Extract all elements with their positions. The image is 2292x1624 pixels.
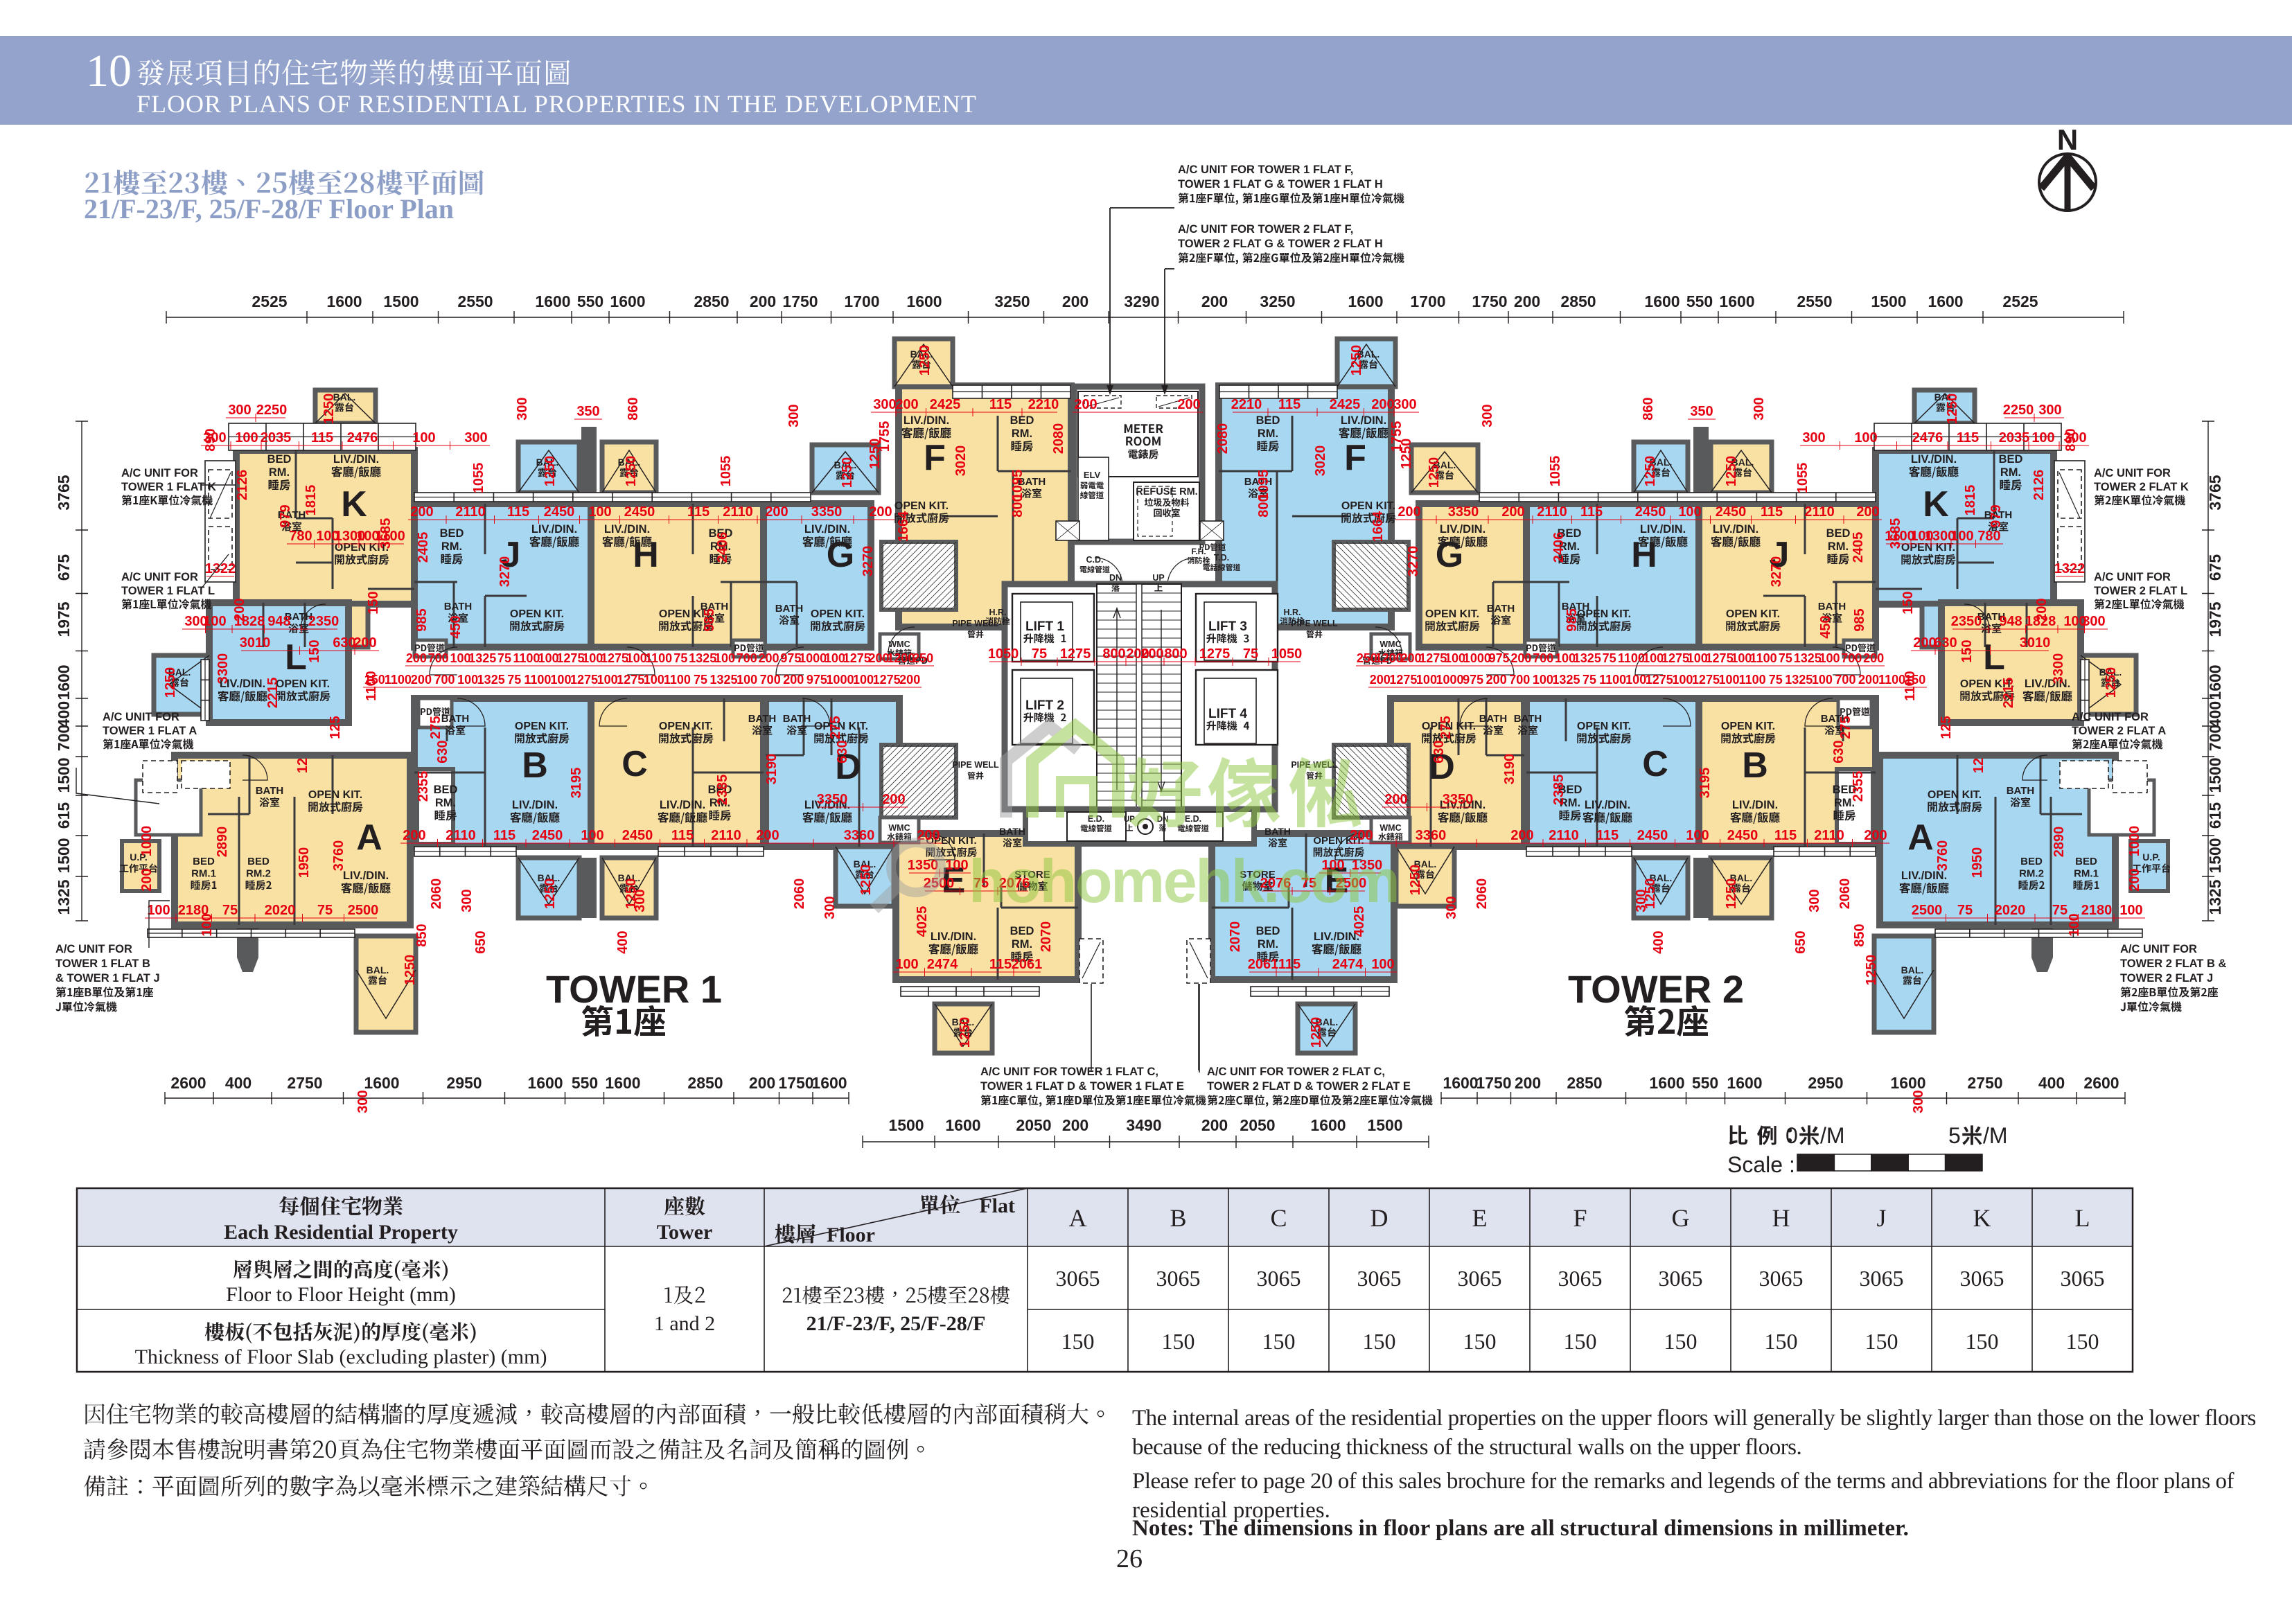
svg-text:700: 700	[760, 673, 781, 687]
svg-text:100: 100	[582, 651, 603, 665]
svg-text:100: 100	[895, 957, 918, 972]
svg-text:1050: 1050	[1271, 646, 1303, 662]
svg-text:1600: 1600	[1443, 1074, 1478, 1092]
svg-text:75: 75	[2052, 903, 2068, 918]
svg-text:B: B	[1170, 1204, 1186, 1232]
svg-text:2850: 2850	[687, 1074, 723, 1092]
svg-text:because of the reducing thickn: because of the reducing thickness of the…	[1132, 1435, 1801, 1460]
svg-text:1664: 1664	[1370, 511, 1386, 542]
svg-text:400: 400	[615, 930, 631, 953]
svg-text:2406: 2406	[1551, 532, 1567, 563]
svg-text:780: 780	[289, 529, 312, 544]
svg-text:150: 150	[1564, 1329, 1597, 1354]
svg-text:1250: 1250	[1427, 457, 1442, 488]
svg-text:1600: 1600	[535, 292, 570, 310]
svg-text:TOWER 1 FLAT D & TOWER 1 FLAT: TOWER 1 FLAT D & TOWER 1 FLAT E	[980, 1080, 1184, 1093]
svg-text:100: 100	[1371, 957, 1394, 972]
svg-text:BATH: BATH	[1514, 713, 1542, 725]
svg-text:1600: 1600	[1890, 1074, 1925, 1092]
svg-text:150: 150	[1061, 1329, 1095, 1354]
svg-text:2890: 2890	[2052, 827, 2067, 858]
svg-text:300: 300	[1752, 397, 1767, 420]
svg-text:2750: 2750	[287, 1074, 322, 1092]
svg-text:BATH: BATH	[783, 713, 811, 725]
svg-text:LIV./DIN.: LIV./DIN.	[931, 930, 976, 943]
svg-text:2450: 2450	[1716, 504, 1747, 520]
svg-text:2350: 2350	[308, 614, 340, 629]
svg-text:OPEN KIT.: OPEN KIT.	[811, 608, 865, 620]
svg-text:A/C UNIT FOR: A/C UNIT FOR	[103, 711, 179, 723]
svg-text:200: 200	[1062, 1116, 1088, 1134]
svg-text:100: 100	[412, 430, 435, 445]
svg-text:200: 200	[353, 635, 376, 651]
svg-text:250: 250	[913, 651, 933, 665]
svg-text:700: 700	[2206, 725, 2224, 751]
svg-text:3065: 3065	[1558, 1266, 1603, 1291]
svg-text:650: 650	[1793, 930, 1808, 953]
svg-text:LIV./DIN.: LIV./DIN.	[604, 523, 650, 536]
svg-text:RM.: RM.	[441, 540, 462, 553]
svg-text:1250: 1250	[321, 394, 337, 425]
svg-text:75: 75	[1957, 903, 1973, 918]
svg-text:B: B	[522, 745, 548, 786]
svg-text:L: L	[2075, 1204, 2090, 1232]
svg-text:LIV./DIN.: LIV./DIN.	[531, 523, 577, 536]
svg-text:1055: 1055	[471, 463, 486, 494]
svg-text:5: 5	[1948, 1123, 1961, 1148]
svg-text:2450: 2450	[532, 828, 563, 843]
svg-text:100: 100	[597, 673, 618, 687]
svg-text:275: 275	[1838, 716, 1853, 739]
svg-text:3020: 3020	[1313, 445, 1328, 477]
svg-text:400: 400	[225, 1074, 252, 1092]
svg-text:300: 300	[1393, 397, 1416, 412]
svg-text:TOWER 2 FLAT J: TOWER 2 FLAT J	[2120, 972, 2213, 985]
svg-text:150: 150	[366, 591, 381, 614]
svg-text:2210: 2210	[1231, 397, 1262, 412]
svg-text:300: 300	[1634, 889, 1649, 912]
svg-text:1100: 1100	[1750, 651, 1777, 665]
svg-text:K: K	[341, 484, 367, 524]
svg-text:115: 115	[1278, 957, 1301, 972]
svg-text:2385: 2385	[1551, 775, 1567, 806]
svg-text:700: 700	[1509, 673, 1530, 687]
svg-text:1275: 1275	[1692, 673, 1720, 687]
svg-text:LIFT 3: LIFT 3	[1208, 619, 1247, 634]
svg-text:985: 985	[702, 608, 717, 631]
svg-text:200: 200	[765, 504, 788, 520]
svg-text:200: 200	[1510, 828, 1533, 843]
svg-text:1275: 1275	[601, 651, 628, 665]
svg-text:200: 200	[1398, 504, 1420, 520]
svg-text:200: 200	[232, 598, 247, 621]
svg-text:2110: 2110	[723, 504, 752, 520]
svg-text:3270: 3270	[1769, 556, 1784, 588]
svg-text:100: 100	[1416, 673, 1437, 687]
svg-text:2110: 2110	[711, 828, 741, 843]
svg-text:1100: 1100	[524, 673, 551, 687]
svg-text:1700: 1700	[1410, 292, 1445, 310]
svg-text:4025: 4025	[915, 906, 930, 937]
svg-text:A/C UNIT FOR: A/C UNIT FOR	[121, 571, 198, 583]
svg-text:200: 200	[406, 651, 427, 665]
svg-text:200: 200	[1350, 828, 1373, 843]
svg-text:975: 975	[806, 673, 827, 687]
svg-text:1600: 1600	[364, 1074, 399, 1092]
svg-text:200: 200	[1062, 292, 1088, 310]
svg-text:2600: 2600	[2083, 1074, 2119, 1092]
svg-text:2215: 2215	[265, 678, 281, 709]
svg-text:300: 300	[355, 1090, 371, 1113]
svg-text:890: 890	[203, 428, 218, 451]
svg-text:1975: 1975	[55, 601, 73, 637]
svg-text:2525: 2525	[252, 292, 287, 310]
svg-text:100: 100	[203, 614, 226, 629]
svg-text:A: A	[1907, 818, 1934, 858]
svg-text:150: 150	[1901, 591, 1916, 614]
svg-text:RM.: RM.	[435, 797, 456, 809]
svg-text:1000: 1000	[139, 826, 155, 857]
svg-text:100: 100	[200, 913, 215, 936]
svg-text:RM.2: RM.2	[246, 868, 271, 880]
svg-text:LIV./DIN.: LIV./DIN.	[660, 799, 705, 811]
svg-text:300: 300	[515, 397, 530, 420]
svg-text:100: 100	[644, 673, 664, 687]
svg-text:TOWER 1 FLAT A: TOWER 1 FLAT A	[103, 725, 197, 737]
svg-text:1250: 1250	[858, 865, 874, 896]
svg-text:948: 948	[267, 614, 290, 629]
svg-text:100: 100	[147, 903, 170, 918]
svg-text:100: 100	[2031, 430, 2054, 445]
svg-text:100: 100	[550, 673, 571, 687]
svg-text:1500: 1500	[888, 1116, 924, 1134]
svg-text:200: 200	[410, 504, 433, 520]
svg-text:1600: 1600	[610, 292, 645, 310]
svg-text:350: 350	[1690, 404, 1713, 419]
svg-text:250: 250	[1357, 651, 1377, 665]
svg-text:1250: 1250	[1724, 879, 1739, 910]
svg-text:2110: 2110	[1814, 828, 1844, 843]
svg-text:H: H	[1772, 1204, 1790, 1232]
svg-text:A/C UNIT FOR: A/C UNIT FOR	[2094, 467, 2171, 479]
svg-text:3065: 3065	[1056, 1266, 1100, 1291]
svg-text:RM.: RM.	[1012, 427, 1032, 440]
svg-text:1250: 1250	[1643, 456, 1658, 487]
svg-text:3010: 3010	[240, 635, 271, 651]
svg-text:LIV./DIN.: LIV./DIN.	[1713, 523, 1758, 536]
svg-text:150: 150	[1865, 1329, 1898, 1354]
svg-text:3300: 3300	[2051, 653, 2066, 685]
svg-text:1000: 1000	[799, 651, 827, 665]
svg-text:2450: 2450	[1635, 504, 1666, 520]
svg-text:2060: 2060	[1474, 879, 1490, 910]
svg-text:E.D.: E.D.	[1185, 814, 1201, 824]
svg-text:2180: 2180	[2081, 903, 2113, 918]
svg-text:2355: 2355	[416, 771, 431, 802]
svg-text:275: 275	[428, 716, 443, 739]
svg-text:TOWER 2 FLAT L: TOWER 2 FLAT L	[2094, 585, 2187, 597]
svg-text:RM.: RM.	[2000, 466, 2021, 479]
svg-text:100: 100	[2063, 614, 2086, 629]
svg-text:J: J	[1876, 1204, 1886, 1232]
svg-text:675: 675	[55, 554, 73, 581]
svg-text:1500: 1500	[2206, 838, 2224, 873]
svg-text:2500: 2500	[348, 903, 379, 918]
svg-text:1200: 1200	[1375, 651, 1403, 665]
svg-text:1322: 1322	[2054, 561, 2086, 576]
svg-text:115: 115	[311, 430, 333, 445]
svg-text:/M: /M	[1983, 1123, 2008, 1148]
svg-text:1250: 1250	[1349, 345, 1364, 376]
svg-text:275: 275	[1438, 716, 1454, 739]
svg-text:100: 100	[588, 504, 611, 520]
svg-text:800: 800	[1164, 646, 1187, 662]
svg-text:LIV./DIN.: LIV./DIN.	[804, 523, 850, 536]
svg-text:350: 350	[576, 404, 599, 419]
svg-text:3765: 3765	[2206, 475, 2224, 510]
svg-text:975: 975	[780, 651, 801, 665]
svg-text:BATH: BATH	[2007, 785, 2035, 797]
svg-text:Floor: Floor	[827, 1224, 875, 1246]
svg-text:A/C UNIT FOR TOWER 2 FLAT C,: A/C UNIT FOR TOWER 2 FLAT C,	[1207, 1066, 1385, 1078]
svg-text:2950: 2950	[1808, 1074, 1843, 1092]
svg-text:850: 850	[1852, 924, 1867, 946]
svg-text:1322: 1322	[205, 561, 236, 576]
svg-text:200: 200	[1201, 292, 1228, 310]
svg-text:300: 300	[2038, 403, 2061, 418]
svg-text:1100: 1100	[645, 651, 672, 665]
svg-text:hohomehk.com: hohomehk.com	[969, 847, 1398, 915]
svg-text:1325: 1325	[55, 879, 73, 915]
svg-text:100: 100	[1731, 651, 1752, 665]
svg-text:630: 630	[835, 740, 850, 763]
svg-text:115: 115	[1761, 504, 1783, 520]
svg-text:3350: 3350	[811, 504, 843, 520]
svg-text:OPEN KIT.: OPEN KIT.	[1341, 500, 1395, 512]
svg-text:C: C	[1270, 1204, 1287, 1232]
svg-text:300: 300	[1444, 896, 1459, 919]
svg-text:3300: 3300	[215, 653, 231, 685]
svg-text:200: 200	[1856, 504, 1879, 520]
svg-text:1050: 1050	[988, 646, 1019, 662]
svg-text:100: 100	[1625, 673, 1646, 687]
svg-text:1275: 1275	[1389, 673, 1417, 687]
svg-text:700: 700	[428, 651, 449, 665]
svg-text:200: 200	[759, 651, 779, 665]
svg-text:OPEN KIT.: OPEN KIT.	[276, 678, 330, 690]
svg-text:200: 200	[1371, 397, 1394, 412]
svg-text:3490: 3490	[1126, 1116, 1161, 1134]
svg-text:A/C UNIT FOR: A/C UNIT FOR	[2072, 711, 2149, 723]
svg-text:1600: 1600	[1727, 1074, 1762, 1092]
svg-text:T.D.: T.D.	[1214, 553, 1229, 563]
svg-text:BATH: BATH	[256, 785, 284, 797]
svg-text:1325: 1325	[2206, 879, 2224, 915]
svg-text:2080: 2080	[1051, 423, 1066, 454]
svg-text:F: F	[1344, 438, 1366, 478]
svg-text:630: 630	[1831, 740, 1846, 763]
svg-text:1325: 1325	[477, 673, 505, 687]
svg-text:A/C UNIT FOR TOWER 2 FLAT F,: A/C UNIT FOR TOWER 2 FLAT F,	[1178, 223, 1353, 236]
svg-text:200: 200	[1400, 651, 1421, 665]
svg-text:1600: 1600	[55, 664, 73, 700]
svg-text:F.H.: F.H.	[1191, 547, 1206, 556]
svg-text:630: 630	[1431, 740, 1447, 763]
svg-text:1600: 1600	[1310, 1116, 1346, 1134]
svg-text:3020: 3020	[953, 445, 969, 477]
svg-text:300: 300	[1911, 1090, 1926, 1113]
svg-text:LIFT 4: LIFT 4	[1208, 707, 1247, 721]
svg-text:1950: 1950	[1970, 847, 1985, 879]
svg-text:780: 780	[1977, 529, 2000, 544]
svg-text:100: 100	[1555, 651, 1576, 665]
svg-text:100: 100	[235, 430, 258, 445]
svg-text:200: 200	[868, 651, 889, 665]
svg-text:3760: 3760	[1935, 840, 1950, 872]
svg-text:2355: 2355	[1851, 771, 1866, 802]
svg-text:1275: 1275	[617, 673, 644, 687]
svg-text:1250: 1250	[867, 439, 883, 470]
svg-text:200: 200	[1384, 792, 1407, 807]
svg-text:1500: 1500	[383, 292, 418, 310]
svg-text:2070: 2070	[1228, 921, 1243, 953]
svg-text:400: 400	[2038, 1074, 2065, 1092]
svg-text:150: 150	[1162, 1329, 1195, 1354]
svg-text:400: 400	[2206, 701, 2224, 727]
svg-text:2950: 2950	[446, 1074, 482, 1092]
svg-text:1325: 1325	[1794, 651, 1822, 665]
svg-text:975: 975	[1489, 651, 1510, 665]
svg-text:200: 200	[783, 673, 804, 687]
svg-text:1500: 1500	[55, 838, 73, 873]
svg-text:200: 200	[1514, 292, 1540, 310]
svg-text:BED: BED	[267, 453, 292, 466]
svg-text:1325: 1325	[1552, 673, 1580, 687]
svg-text:3765: 3765	[55, 475, 73, 510]
svg-text:TOWER 1 FLAT G & TOWER 1 FLAT: TOWER 1 FLAT G & TOWER 1 FLAT H	[1178, 178, 1383, 191]
svg-text:1600: 1600	[1649, 1074, 1684, 1092]
svg-text:1750: 1750	[778, 1074, 813, 1092]
svg-text:1100: 1100	[1599, 673, 1626, 687]
svg-text:BED: BED	[434, 784, 458, 796]
svg-text:100: 100	[2067, 913, 2082, 936]
svg-text:200: 200	[2034, 598, 2049, 621]
svg-text:1250: 1250	[1408, 865, 1423, 896]
svg-text:WMC: WMC	[888, 823, 910, 833]
svg-text:75: 75	[1769, 673, 1783, 687]
svg-text:LIFT 2: LIFT 2	[1025, 698, 1064, 713]
svg-text:100: 100	[1643, 651, 1664, 665]
svg-text:LIV./DIN.: LIV./DIN.	[1640, 523, 1686, 536]
svg-text:LIFT 1: LIFT 1	[1025, 619, 1064, 634]
svg-text:2250: 2250	[256, 403, 288, 418]
svg-text:C: C	[622, 744, 648, 784]
svg-text:100: 100	[737, 673, 757, 687]
svg-text:300: 300	[459, 889, 475, 912]
svg-text:1250: 1250	[543, 879, 558, 910]
svg-text:2550: 2550	[457, 292, 493, 310]
svg-text:700: 700	[1835, 673, 1855, 687]
svg-text:2070: 2070	[1039, 921, 1054, 953]
svg-text:Tower: Tower	[657, 1221, 713, 1244]
svg-text:1100: 1100	[1878, 673, 1905, 687]
svg-text:800: 800	[1010, 494, 1025, 517]
svg-text:1250: 1250	[1309, 1017, 1324, 1048]
svg-text:75: 75	[1779, 651, 1792, 665]
svg-text:2476: 2476	[347, 430, 378, 445]
svg-text:300: 300	[822, 896, 838, 919]
svg-text:630: 630	[1934, 635, 1957, 651]
svg-text:1975: 1975	[2206, 601, 2224, 637]
svg-text:100: 100	[457, 673, 478, 687]
svg-text:150: 150	[1664, 1329, 1698, 1354]
svg-text:1250: 1250	[1724, 456, 1739, 487]
svg-text:2110: 2110	[1549, 828, 1578, 843]
svg-text:1600: 1600	[605, 1074, 640, 1092]
svg-text:200: 200	[1510, 651, 1531, 665]
svg-text:OPEN KIT.: OPEN KIT.	[1721, 721, 1775, 732]
svg-text:OPEN KIT.: OPEN KIT.	[659, 721, 713, 732]
svg-text:150: 150	[1765, 1329, 1798, 1354]
svg-text:985: 985	[414, 608, 430, 631]
svg-text:1325: 1325	[1785, 673, 1813, 687]
svg-text:BATH: BATH	[999, 826, 1025, 837]
svg-text:2850: 2850	[1567, 1074, 1602, 1092]
svg-text:K: K	[1973, 1204, 1991, 1232]
svg-text:1275: 1275	[1646, 673, 1673, 687]
svg-text:979: 979	[278, 504, 293, 527]
svg-text:3270: 3270	[497, 556, 513, 588]
svg-text:115: 115	[1774, 828, 1797, 843]
svg-text:100: 100	[1533, 673, 1553, 687]
svg-text:75: 75	[1603, 651, 1616, 665]
svg-text:100: 100	[1719, 673, 1740, 687]
svg-text:OPEN KIT.: OPEN KIT.	[515, 721, 569, 732]
svg-text:1500: 1500	[2206, 757, 2224, 793]
svg-text:12: 12	[295, 758, 310, 773]
svg-text:2476: 2476	[1912, 430, 1943, 445]
svg-text:3760: 3760	[331, 840, 346, 872]
svg-text:BAL.: BAL.	[1901, 964, 1924, 976]
svg-text:BED: BED	[2075, 856, 2097, 867]
svg-text:125: 125	[328, 716, 343, 739]
svg-text:550: 550	[577, 292, 603, 310]
svg-text:1325: 1325	[710, 673, 738, 687]
svg-text:BATH: BATH	[1479, 713, 1508, 725]
svg-text:ELV: ELV	[1084, 470, 1101, 480]
svg-text:3190: 3190	[764, 754, 779, 785]
svg-text:2110: 2110	[1537, 504, 1567, 520]
svg-text:1700: 1700	[844, 292, 879, 310]
svg-text:300: 300	[873, 397, 896, 412]
svg-text:75: 75	[497, 651, 511, 665]
svg-text:1600: 1600	[1348, 292, 1383, 310]
svg-text:700: 700	[737, 651, 757, 665]
svg-text:RM.2: RM.2	[2019, 868, 2044, 880]
svg-text:Thickness of Floor Slab (exclu: Thickness of Floor Slab (excluding plast…	[135, 1345, 547, 1368]
svg-text:700: 700	[434, 673, 455, 687]
svg-text:TOWER 2: TOWER 2	[1568, 967, 1744, 1011]
svg-text:2080: 2080	[1215, 423, 1231, 454]
svg-text:200: 200	[1913, 635, 1936, 651]
svg-text:1100: 1100	[1903, 671, 1918, 700]
svg-text:U.P.: U.P.	[2142, 851, 2160, 863]
svg-text:3350: 3350	[817, 792, 848, 807]
svg-text:LIV./DIN.: LIV./DIN.	[1911, 453, 1957, 466]
svg-text:2405: 2405	[1851, 532, 1866, 563]
svg-text:200: 200	[756, 828, 779, 843]
svg-text:100: 100	[1819, 651, 1840, 665]
